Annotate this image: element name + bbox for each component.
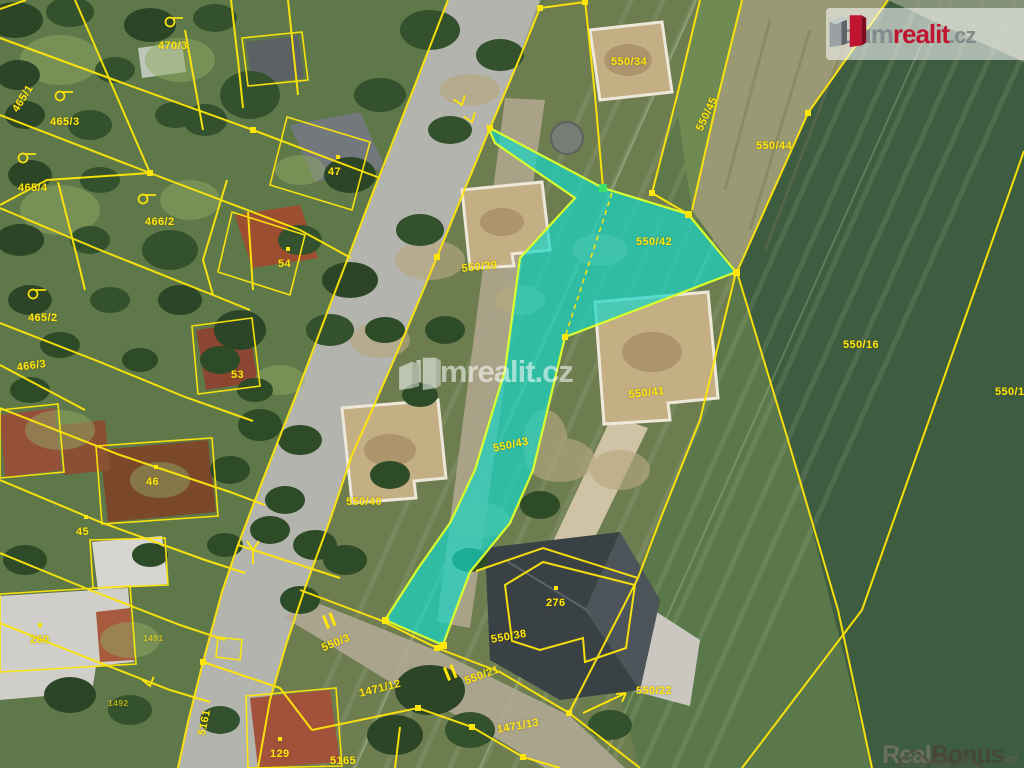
parcel-label: 550/3 <box>320 632 352 654</box>
parcel-label: 45 <box>76 526 89 538</box>
house-number-dot <box>286 247 290 251</box>
parcel-label: 465/3 <box>50 116 80 128</box>
parcel-label: 550/17 <box>995 386 1024 398</box>
parcel-label: 550/21 <box>463 664 501 688</box>
parcel-label: 550/34 <box>611 56 647 68</box>
parcel-label: 550/41 <box>628 385 665 401</box>
logo-part-cz: .cz <box>949 23 975 48</box>
parcel-label: 465/2 <box>28 312 58 324</box>
cadastral-map-screenshot: 470/3465/1465/3465/4466/2465/2466/353475… <box>0 0 1024 768</box>
house-number-dot <box>154 465 158 469</box>
parcel-label: 550/38 <box>490 628 528 646</box>
dumrealit-logo: dumrealit.cz <box>826 8 1024 60</box>
parcel-label: 550/22 <box>636 685 672 697</box>
parcel-label: 470/3 <box>158 40 188 52</box>
parcel-label: 465/1 <box>10 83 36 114</box>
parcel-label: 466/2 <box>145 216 175 228</box>
parcel-label: 550/16 <box>843 339 879 351</box>
parcel-label: 550/42 <box>636 236 672 248</box>
parcel-label: 46 <box>146 476 159 488</box>
parcel-label: 466/3 <box>16 358 47 374</box>
parcel-label: 550/43 <box>492 436 530 455</box>
parcel-label: 47 <box>328 166 341 178</box>
parcel-label: 53 <box>231 369 244 381</box>
parcel-label: 1491 <box>143 633 164 643</box>
house-number-dot <box>84 515 88 519</box>
house-number-dot <box>336 155 340 159</box>
parcel-label: 550/40 <box>346 496 382 508</box>
parcel-label: 550/39 <box>461 259 498 275</box>
parcel-label: 1492 <box>108 698 129 708</box>
parcel-label: 1471/12 <box>358 678 402 700</box>
parcel-label: 5165 <box>330 755 356 767</box>
parcel-label: 276 <box>546 597 566 609</box>
parcel-label: 54 <box>278 258 291 270</box>
parcel-label: 465/4 <box>18 182 48 194</box>
dumrealit-logo-icon <box>826 8 868 48</box>
parcel-label: 550/44 <box>756 140 792 152</box>
parcel-label: 550/45 <box>694 95 720 133</box>
logo-part-realit: realit <box>893 19 949 49</box>
parcel-label: 129 <box>270 748 290 760</box>
house-number-dot <box>38 623 42 627</box>
house-number-dot <box>278 737 282 741</box>
parcel-label: 5161 <box>196 708 213 736</box>
parcel-label: 260 <box>30 634 50 646</box>
parcel-label: 1471/13 <box>496 717 540 736</box>
house-number-dot <box>554 586 558 590</box>
parcel-labels-layer: 470/3465/1465/3465/4466/2465/2466/353475… <box>0 0 1024 768</box>
